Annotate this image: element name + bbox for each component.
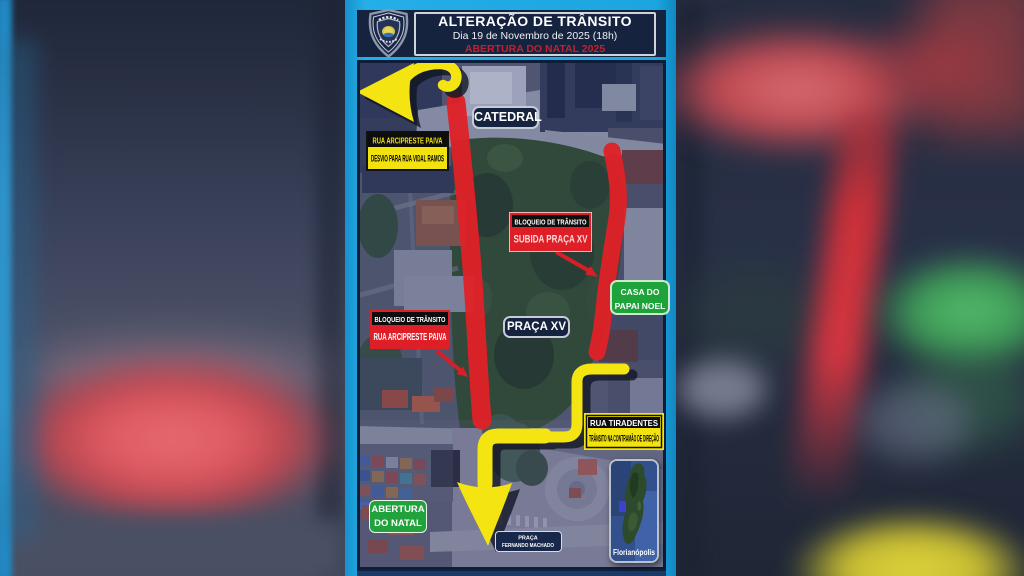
svg-text:RUA ARCIPRESTE PAIVA: RUA ARCIPRESTE PAIVA	[374, 332, 447, 343]
svg-text:SUBIDA PRAÇA XV: SUBIDA PRAÇA XV	[514, 234, 588, 246]
svg-text:FERNANDO MACHADO: FERNANDO MACHADO	[502, 543, 555, 549]
svg-text:Florianópolis: Florianópolis	[613, 548, 655, 557]
svg-text:TRÂNSITO NA CONTRAMÃO DE DIREÇ: TRÂNSITO NA CONTRAMÃO DE DIREÇÃO	[589, 433, 659, 444]
svg-text:BLOQUEIO DE TRÂNSITO: BLOQUEIO DE TRÂNSITO	[375, 315, 446, 324]
svg-text:BLOQUEIO DE TRÂNSITO: BLOQUEIO DE TRÂNSITO	[515, 218, 587, 227]
svg-text:RUA TIRADENTES: RUA TIRADENTES	[590, 418, 658, 428]
svg-text:RUA ARCIPRESTE PAIVA: RUA ARCIPRESTE PAIVA	[373, 137, 443, 146]
svg-text:DESVIO PARA RUA VIDAL RAMOS: DESVIO PARA RUA VIDAL RAMOS	[371, 154, 444, 164]
svg-text:PRAÇA: PRAÇA	[518, 536, 538, 542]
